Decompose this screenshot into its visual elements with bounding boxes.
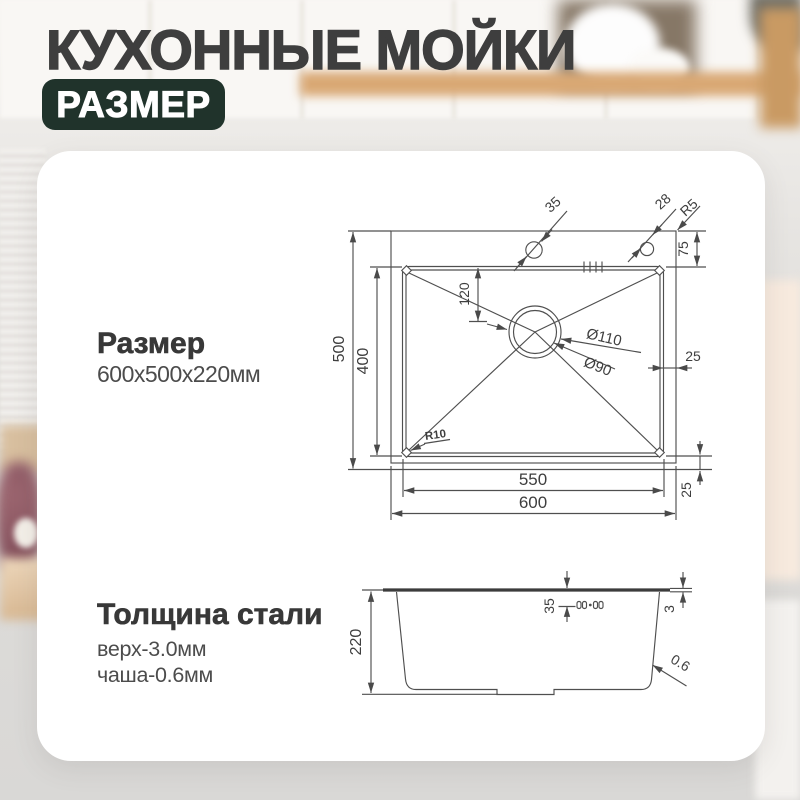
size-badge: РАЗМЕР: [42, 79, 225, 130]
thickness-bowl-value: чаша-0.6мм: [97, 664, 213, 688]
background-egg: [14, 518, 38, 548]
page-title: КУХОННЫЕ МОЙКИ: [46, 21, 575, 80]
thickness-top-value: верх-3.0мм: [97, 638, 206, 662]
size-badge-label: РАЗМЕР: [56, 86, 211, 123]
poster: КУХОННЫЕ МОЙКИ РАЗМЕР Размер 600x500x220…: [0, 0, 800, 800]
background-wood-panel: [760, 8, 800, 128]
thickness-section-heading: Толщина стали: [97, 598, 323, 631]
size-section-heading: Размер: [97, 327, 205, 360]
background-fruits: [0, 462, 42, 572]
size-section-value: 600x500x220мм: [97, 362, 260, 387]
